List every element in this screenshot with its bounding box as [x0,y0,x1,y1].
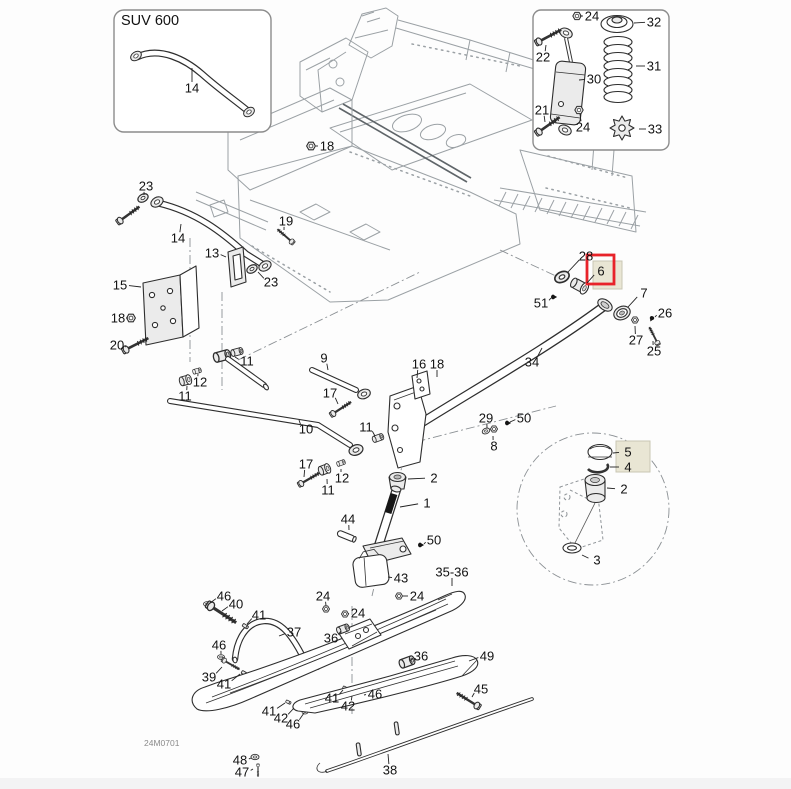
part-label-19: 19 [279,214,293,229]
footboard-hatching [499,192,638,229]
parts-diagram-page: SUV 600 24M0701 142432223031212433182319… [0,0,791,789]
part-label-7: 7 [640,286,647,301]
washer-7 [612,304,633,323]
washer-23 [245,263,258,275]
part-label-17: 17 [323,386,337,401]
part-label-24: 24 [576,120,590,135]
spindle-assembly [337,371,430,588]
part-label-24: 24 [410,589,424,604]
o-ring-3 [563,543,581,553]
spacer-12 [336,459,346,466]
part-label-32: 32 [647,15,661,30]
part-label-44: 44 [341,512,355,527]
beige-highlight-box-5-4 [616,441,650,472]
part-label-11: 11 [321,483,335,498]
part-label-21: 21 [535,103,549,118]
part-label-47: 47 [235,765,249,780]
part-label-46: 46 [286,717,300,732]
part-label-50: 50 [427,533,441,548]
part-label-25: 25 [647,344,661,359]
part-label-18: 18 [320,139,334,154]
part-label-2: 2 [620,482,627,497]
part-label-4: 4 [624,460,631,475]
coil-spring-31 [604,37,632,103]
nut-24 [322,606,329,612]
part-label-41: 41 [252,608,266,623]
diagram-code: 24M0701 [144,738,180,748]
spring-cap-32 [601,16,633,33]
bolt-17 [329,399,353,418]
part-label-46: 46 [212,638,226,653]
snap-ring-4 [588,464,608,472]
part-label-16: 16 [412,357,426,372]
bolt-23 [115,204,142,226]
part-label-45: 45 [474,682,488,697]
nut-8 [490,426,497,432]
part-label-38: 38 [383,763,397,778]
part-label-5: 5 [624,445,631,460]
part-label-24: 24 [351,606,365,621]
part-label-24: 24 [316,589,330,604]
link-arms [170,347,385,488]
nut-27 [631,317,638,323]
bushing-2-detail [585,475,605,503]
part-label-18: 18 [430,357,444,372]
part-label-46: 46 [368,687,382,702]
washer-24 [573,12,581,19]
part-label-33: 33 [648,122,662,137]
part-label-24: 24 [585,9,599,24]
part-label-43: 43 [394,571,408,586]
nut-24 [395,593,402,599]
bracket-16 [412,371,430,399]
part-label-42: 42 [341,699,355,714]
part-label-39: 39 [202,670,216,685]
part-label-29: 29 [479,411,493,426]
bolt-17 [297,470,322,488]
part-label-15: 15 [113,278,127,293]
part-label-49: 49 [480,649,494,664]
part-label-14: 14 [171,231,185,246]
part-label-35-36: 35-36 [435,565,468,580]
washer-48 [251,754,259,759]
part-label-9: 9 [320,351,327,366]
part-label-50: 50 [517,411,531,426]
washer-24 [575,106,583,113]
part-label-11: 11 [240,354,254,369]
washer-29 [481,427,491,435]
pin-26 [648,315,654,322]
part-label-27: 27 [629,333,643,348]
part-label-1: 1 [423,496,430,511]
washer-23 [136,192,149,204]
pin-44 [337,530,357,543]
part-label-37: 37 [287,625,301,640]
part-label-26: 26 [658,306,672,321]
part-label-51: 51 [534,296,548,311]
part-label-18: 18 [111,311,125,326]
arm-10 [170,401,350,445]
exploded-parts-diagram: SUV 600 24M0701 142432223031212433182319… [0,0,791,789]
part-label-14: 14 [185,81,199,96]
bolt-19 [276,227,296,246]
part-label-10: 10 [299,422,313,437]
spacer-12 [192,368,202,375]
part-label-23: 23 [264,275,278,290]
part-label-36: 36 [324,631,338,646]
part-label-36: 36 [414,649,428,664]
part-label-11: 11 [359,420,373,435]
part-label-41: 41 [325,691,339,706]
part-label-12: 12 [335,471,349,486]
part-label-12: 12 [193,375,207,390]
adjuster-cam-33 [610,116,634,140]
part-label-17: 17 [299,457,313,472]
nut-24 [341,611,348,617]
part-label-20: 20 [110,338,124,353]
part-label-11: 11 [178,389,192,404]
cap-5 [588,445,612,460]
part-label-3: 3 [593,553,600,568]
part-label-31: 31 [647,59,661,74]
pin-51 [551,295,557,300]
pin-50 [418,543,424,548]
spacer-41 [285,700,291,705]
part-label-23: 23 [139,179,153,194]
nut-18 [307,142,316,150]
pin-50 [505,421,511,426]
part-label-22: 22 [536,50,550,65]
bracket-13 [228,247,246,287]
bushing-11 [371,433,384,443]
part-label-28: 28 [579,249,593,264]
bracket-15 [143,266,199,345]
part-label-40: 40 [229,597,243,612]
window-bottom-strip [0,778,791,789]
screw-47 [256,764,259,777]
bushing-11 [178,374,192,387]
part-label-34: 34 [525,355,539,370]
part-label-8: 8 [490,439,497,454]
inset-title: SUV 600 [121,13,179,29]
part-label-2: 2 [430,471,437,486]
part-label-13: 13 [205,246,219,261]
part-label-30: 30 [587,72,601,87]
part-label-6: 6 [597,264,604,279]
part-label-41: 41 [217,677,231,692]
